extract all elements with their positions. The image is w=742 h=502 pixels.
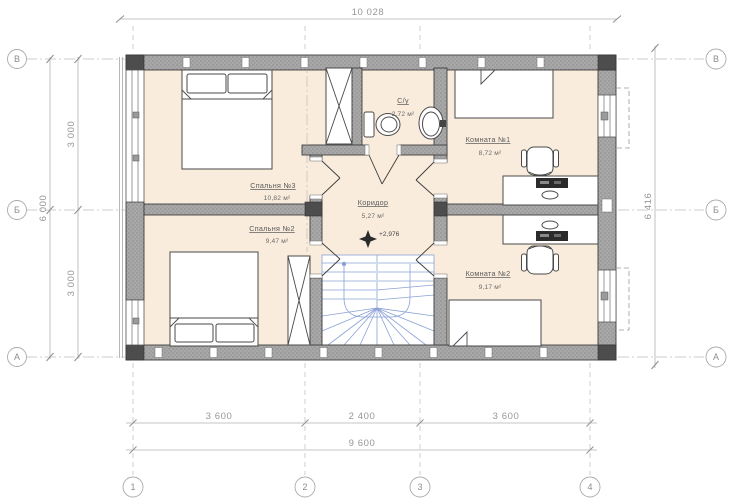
axis-label-b-left: Б [14, 205, 20, 215]
dim-bottom-2-3: 2 400 [349, 411, 376, 422]
dim-left: 6 000 3 000 3 000 [26, 55, 125, 361]
corner-post [126, 345, 144, 360]
room-name-bedroom2: Спальня №2 [249, 224, 295, 233]
room-name-bathroom: С/у [397, 96, 409, 105]
wall-left-mid [126, 202, 144, 300]
stair-start-dot [342, 262, 346, 266]
dim-bottom-3-4: 3 600 [493, 411, 520, 422]
room-area-bathroom: 2,72 м² [392, 111, 415, 118]
axis-label-v-right: В [713, 54, 719, 64]
room-area-room1: 8,72 м² [479, 150, 502, 157]
elevation-value: +2,976 [379, 231, 400, 238]
room-area-bedroom2: 9,47 м² [266, 238, 289, 245]
shaft-box [326, 68, 352, 144]
axis-label-b-right: Б [713, 205, 719, 215]
dim-left-total: 6 000 [38, 195, 49, 222]
wardrobe-bedroom2 [288, 256, 310, 345]
wall-bathroom-south [302, 145, 368, 155]
axis-label-v-left: В [14, 54, 20, 64]
axis-label-3: 3 [417, 482, 422, 492]
bed-single-room2 [449, 300, 541, 346]
wall-bedrooms-divider [144, 204, 310, 215]
dormer-outline-room1 [616, 88, 629, 148]
floorplan-page: Спальня №3 10,82 м² Спальня №2 9,47 м² С… [0, 0, 742, 502]
wall-bathroom-west [352, 68, 362, 145]
window-bedroom3 [126, 70, 144, 202]
keyboard-icon [542, 221, 558, 229]
dormer-outline-room2 [616, 268, 629, 330]
dim-right-total: 6 416 [643, 193, 654, 220]
corner-post [598, 345, 616, 360]
bed-single-room1 [455, 70, 553, 118]
dim-left-lower: 3 000 [66, 270, 77, 297]
dim-left-upper: 3 000 [66, 121, 77, 148]
dim-right: 6 416 [618, 44, 704, 369]
wall-rooms-divider [447, 204, 598, 215]
window-room2 [598, 270, 616, 322]
room-name-room2: Комната №2 [466, 269, 511, 278]
corner-post [598, 55, 616, 70]
room-name-bedroom3: Спальня №3 [250, 181, 296, 190]
chair-room1 [522, 147, 559, 175]
dim-top-total: 10 028 [352, 7, 385, 18]
floorplan-drawing: Спальня №3 10,82 м² Спальня №2 9,47 м² С… [0, 0, 742, 502]
dim-bottom: 3 600 2 400 3 600 9 600 [126, 363, 597, 475]
roof-eave-line [120, 57, 123, 358]
room-area-corridor: 5,27 м² [362, 213, 385, 220]
dim-top: 10 028 [116, 7, 621, 50]
room-area-room2: 9,17 м² [479, 284, 502, 291]
axis-label-1: 1 [130, 482, 135, 492]
bed-double-bedroom2 [170, 252, 258, 346]
keyboard-icon [542, 191, 558, 199]
desk-room2 [503, 215, 598, 244]
room-name-corridor: Коридор [358, 198, 389, 207]
axis-label-a-right: А [713, 352, 719, 362]
axis-label-4: 4 [587, 482, 592, 492]
window-room1 [598, 95, 616, 137]
window-bedroom2 [126, 300, 144, 345]
bed-double-bedroom3 [182, 70, 272, 169]
desk-room1 [503, 176, 598, 205]
corner-post [126, 55, 144, 70]
room-area-bedroom3: 10,82 м² [264, 195, 291, 202]
chair-room2 [522, 246, 559, 274]
axis-label-a-left: А [14, 352, 20, 362]
room-name-room1: Комната №1 [466, 135, 511, 144]
axis-label-2: 2 [302, 482, 307, 492]
dim-bottom-total: 9 600 [349, 438, 376, 449]
dim-bottom-1-2: 3 600 [206, 411, 233, 422]
